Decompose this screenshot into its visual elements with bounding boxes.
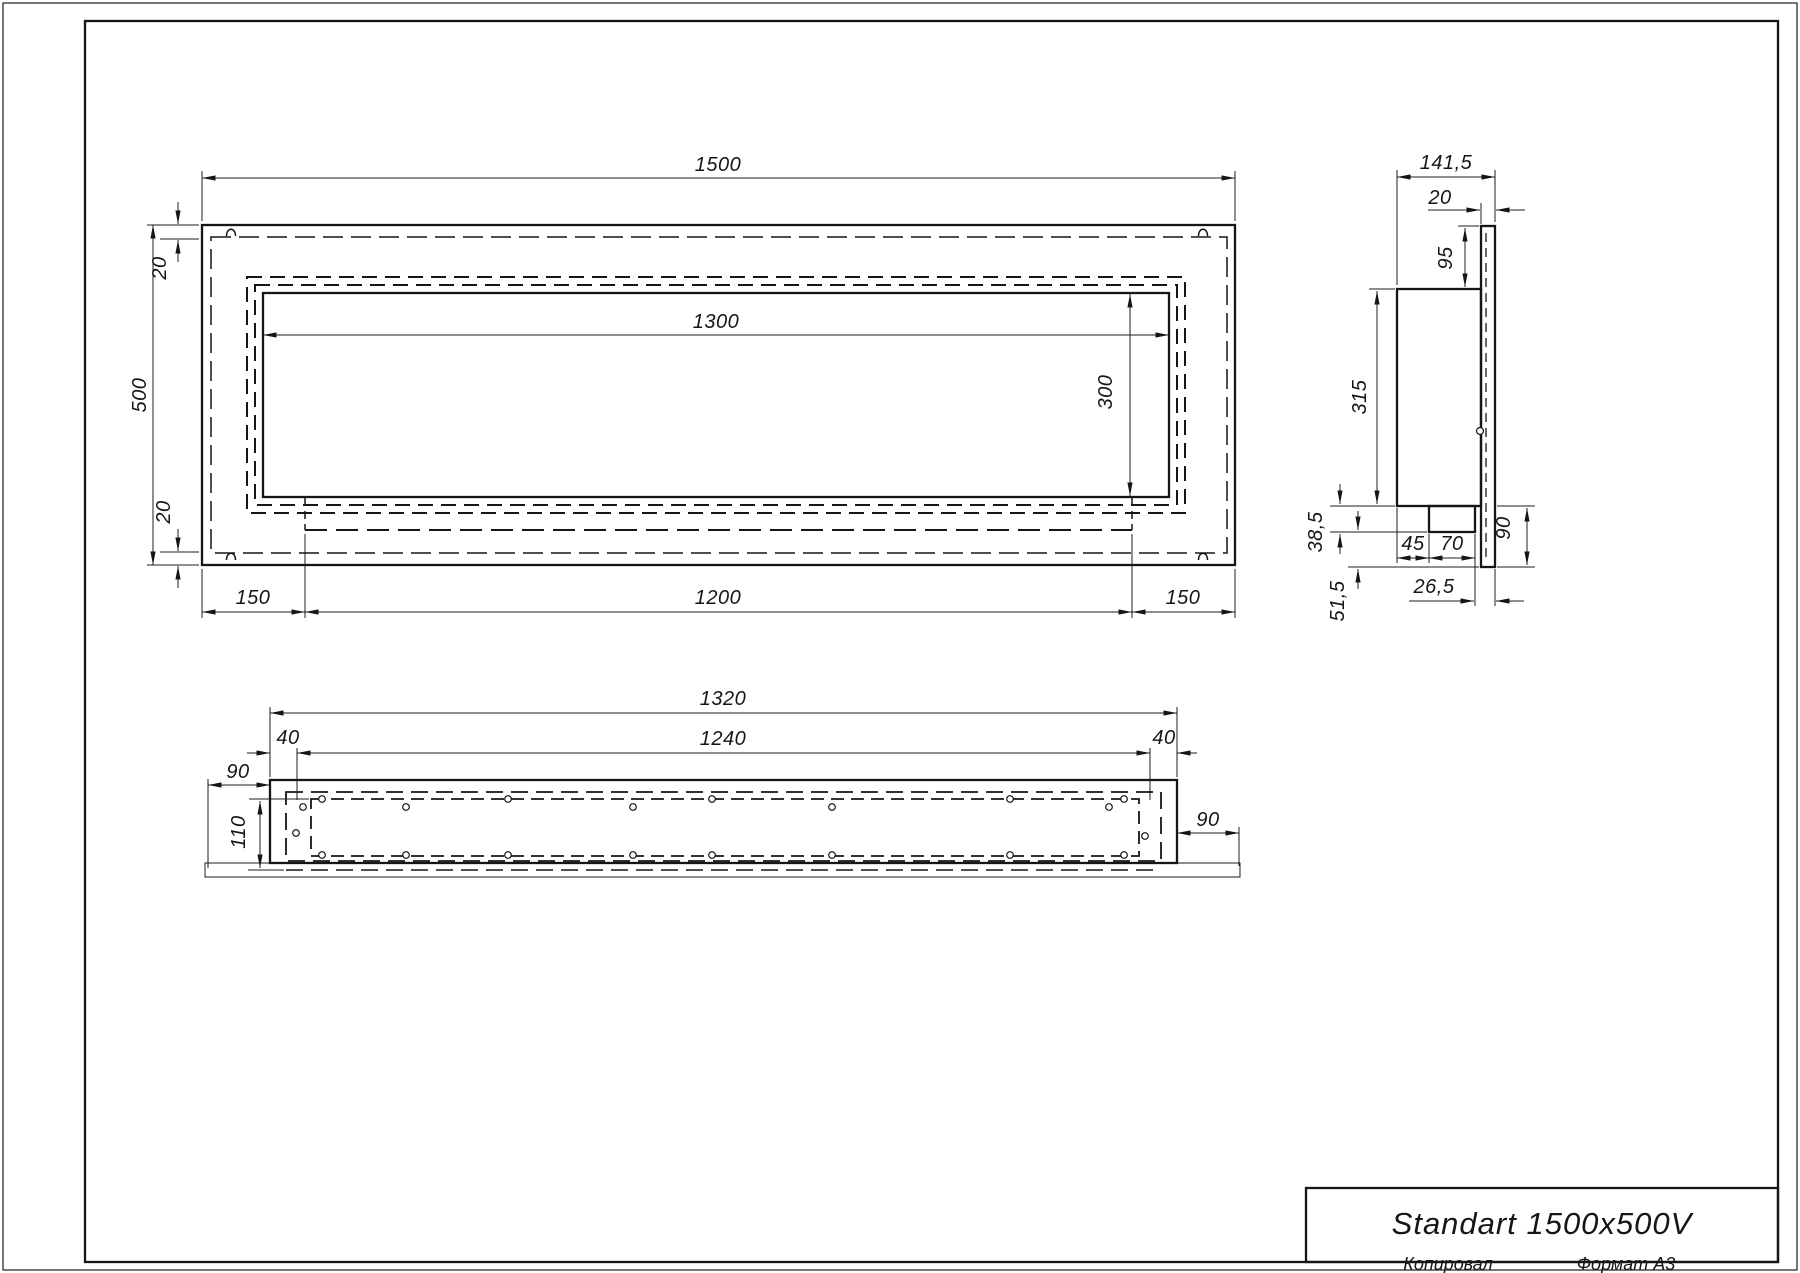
dim-side-panel-drop: 90 [1493, 506, 1535, 567]
dim-front-width: 1500 [202, 154, 1235, 221]
mount-clip-icons [227, 229, 1208, 560]
mount-clip-icon [227, 553, 236, 560]
dim-front-bottom-chain: 150 1200 150 [202, 534, 1235, 618]
dim-label: 95 [1435, 246, 1457, 270]
dim-bottom-overhang-right: 90 [1177, 809, 1239, 866]
dim-label: 500 [129, 378, 151, 413]
dim-label: 110 [228, 815, 250, 848]
dim-label: 300 [1095, 375, 1117, 410]
dim-label: 38,5 [1305, 511, 1327, 552]
mount-clip-icon [1199, 229, 1208, 236]
dim-label: 1320 [700, 688, 747, 710]
dim-label: 150 [1166, 587, 1201, 609]
mount-clip-icon [1199, 553, 1208, 560]
dim-bottom-liner-chain: 1240 40 40 [247, 727, 1197, 800]
dim-label: 20 [149, 256, 171, 280]
blueprint-canvas: 1500 500 20 20 1300 [0, 0, 1800, 1273]
dim-label: 141,5 [1420, 152, 1473, 174]
dim-label: 90 [1493, 516, 1515, 539]
dim-label: 1300 [693, 311, 740, 333]
bottom-liner-hidden-outer [286, 792, 1161, 861]
dim-side-front-offset: 26,5 [1409, 534, 1524, 606]
front-view: 1500 500 20 20 1300 [129, 154, 1235, 618]
dim-label: 150 [236, 587, 271, 609]
dim-side-bottom-drop: 51,5 [1327, 511, 1479, 621]
dim-label: 90 [226, 761, 249, 783]
dim-label: 51,5 [1327, 580, 1349, 621]
dim-side-body-height: 315 [1330, 289, 1395, 506]
dim-front-inset-top: 20 [149, 202, 199, 281]
drawing-title: Standart 1500x500V [1392, 1206, 1695, 1241]
side-view: 141,5 20 95 315 38,5 [1305, 152, 1535, 621]
dim-label: 40 [276, 727, 299, 749]
dim-bottom-overhang-left: 90 [208, 761, 270, 868]
dim-label: 20 [153, 500, 175, 524]
title-block: Standart 1500x500V Копировал Формат А3 [1306, 1188, 1778, 1273]
sheet-edge [3, 3, 1797, 1270]
dim-side-tray-chain: 45 70 [1397, 508, 1475, 563]
dim-label: 70 [1440, 533, 1463, 555]
mounting-holes [293, 796, 1149, 859]
dim-label: 1500 [695, 154, 742, 176]
dim-side-panel-thickness: 20 [1427, 187, 1525, 224]
dim-label: 315 [1349, 379, 1371, 414]
dim-front-opening-height: 300 [1095, 294, 1130, 496]
bottom-liner-hidden-inner [311, 799, 1139, 856]
copied-by-label: Копировал [1403, 1254, 1493, 1273]
side-front-panel [1481, 226, 1495, 567]
dim-label: 20 [1427, 187, 1451, 209]
dim-side-top-offset: 95 [1435, 226, 1479, 287]
mount-clip-icon [227, 229, 236, 236]
side-tray [1429, 506, 1475, 532]
dim-label: 40 [1152, 727, 1175, 749]
dim-front-inset-bottom: 20 [153, 500, 199, 588]
dim-label: 45 [1401, 533, 1425, 555]
bottom-view: 1320 1240 40 40 90 90 [205, 688, 1240, 877]
side-body [1397, 289, 1481, 506]
side-hole [1477, 428, 1484, 435]
drawing-frame [85, 21, 1778, 1262]
dim-label: 90 [1196, 809, 1219, 831]
dim-front-opening-width: 1300 [263, 311, 1169, 335]
drawing-sheet: 1500 500 20 20 1300 [0, 0, 1800, 1273]
format-label: Формат А3 [1577, 1254, 1676, 1273]
dim-label: 1240 [700, 728, 747, 750]
dim-label: 26,5 [1413, 576, 1455, 598]
dim-label: 1200 [695, 587, 742, 609]
